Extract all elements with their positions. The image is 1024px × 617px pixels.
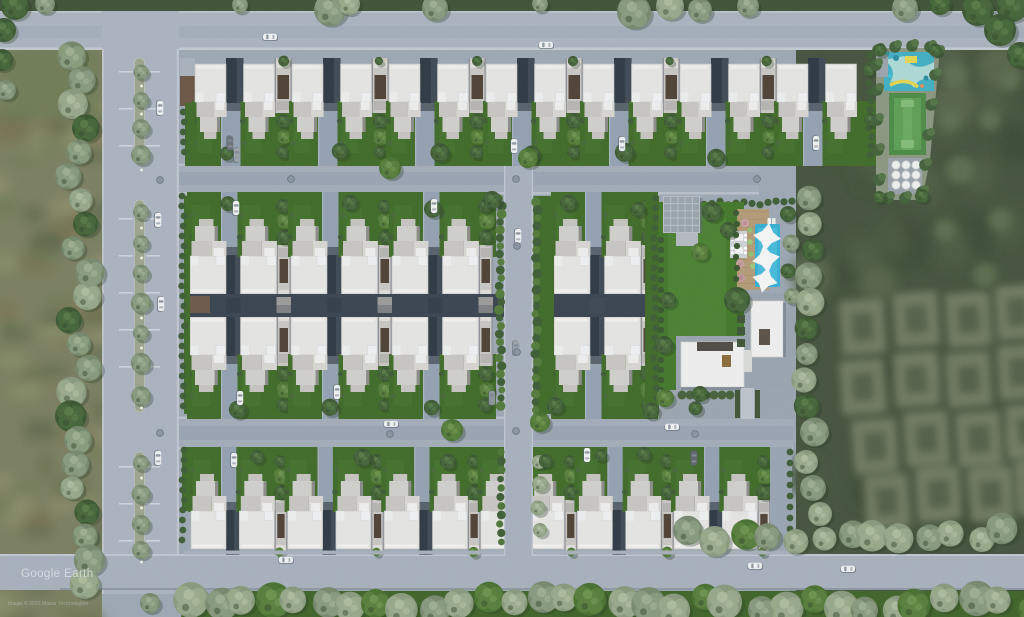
- svg-text:Google Earth: Google Earth: [21, 568, 94, 580]
- svg-text:Image © 2023 Maxar Technologie: Image © 2023 Maxar Technologies: [8, 600, 89, 607]
